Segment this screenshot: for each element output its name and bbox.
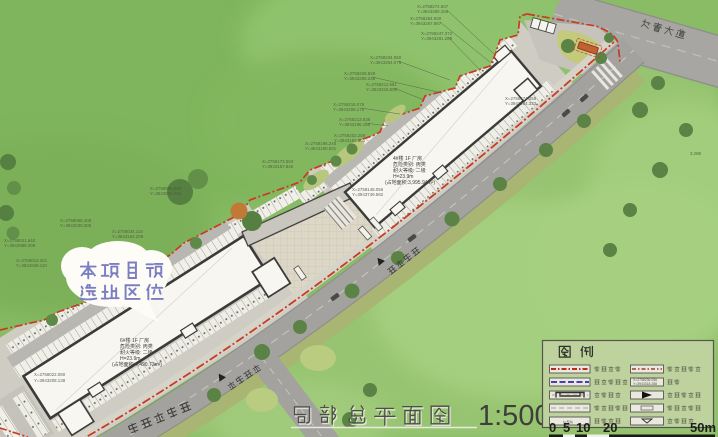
svg-text:危险类别: 丙类: 危险类别: 丙类 (393, 161, 426, 168)
svg-text:0: 0 (549, 420, 556, 435)
svg-text:Y=3943208.138: Y=3943208.138 (34, 378, 66, 383)
svg-text:(占地面积:4,490.72m²): (占地面积:4,490.72m²) (112, 361, 162, 368)
svg-text:Y=3943318.288: Y=3943318.288 (633, 382, 657, 386)
svg-text:20: 20 (603, 420, 617, 435)
svg-text:危险类别: 丙类: 危险类别: 丙类 (120, 343, 153, 350)
svg-text:Y=3943162.208: Y=3943162.208 (112, 234, 144, 239)
svg-text:耐火等级: 二级: 耐火等级: 二级 (393, 167, 426, 174)
svg-text:Y=3943208.170: Y=3943208.170 (333, 107, 365, 112)
svg-text:Y=3943030.308: Y=3943030.308 (60, 223, 92, 228)
svg-text:Y=3942948.110: Y=3942948.110 (16, 263, 47, 268)
svg-text:耐火等级: 二级: 耐火等级: 二级 (120, 349, 153, 356)
svg-text:Y=3943216.580: Y=3943216.580 (366, 87, 398, 92)
svg-text:10: 10 (576, 420, 590, 435)
svg-text:Y=3943749.582: Y=3943749.582 (352, 192, 384, 197)
svg-text:Y=3943281.288: Y=3943281.288 (421, 36, 453, 41)
svg-text:6#楼 1F 厂房: 6#楼 1F 厂房 (120, 337, 149, 344)
svg-text:3.288: 3.288 (690, 151, 702, 156)
svg-text:Y=3942988.308: Y=3942988.308 (4, 243, 36, 248)
svg-text:Y=3943180.501: Y=3943180.501 (305, 146, 337, 151)
svg-text:Y=3943280.258: Y=3943280.258 (417, 9, 449, 14)
svg-text:Y=3943157.846: Y=3943157.846 (262, 164, 294, 169)
svg-text:X=2758022.080: X=2758022.080 (34, 372, 66, 377)
svg-text:Y=3943260.248: Y=3943260.248 (344, 76, 376, 81)
svg-text:Y=3943264.076: Y=3943264.076 (370, 60, 402, 65)
svg-text:5: 5 (563, 420, 570, 435)
svg-text:Y=3943056.245: Y=3943056.245 (150, 191, 182, 196)
svg-text:4#楼 1F 厂房: 4#楼 1F 厂房 (393, 155, 422, 162)
svg-text:Y=3943182.501: Y=3943182.501 (334, 138, 366, 143)
svg-text:(占地面积:3,995.94m²): (占地面积:3,995.94m²) (385, 179, 435, 186)
svg-text:1:500: 1:500 (478, 400, 551, 432)
svg-text:Y=3943284.333: Y=3943284.333 (505, 101, 537, 106)
svg-text:50m: 50m (690, 420, 716, 435)
svg-text:Y=3943196.155: Y=3943196.155 (339, 122, 371, 127)
svg-text:Y=3943267.987: Y=3943267.987 (410, 21, 442, 26)
